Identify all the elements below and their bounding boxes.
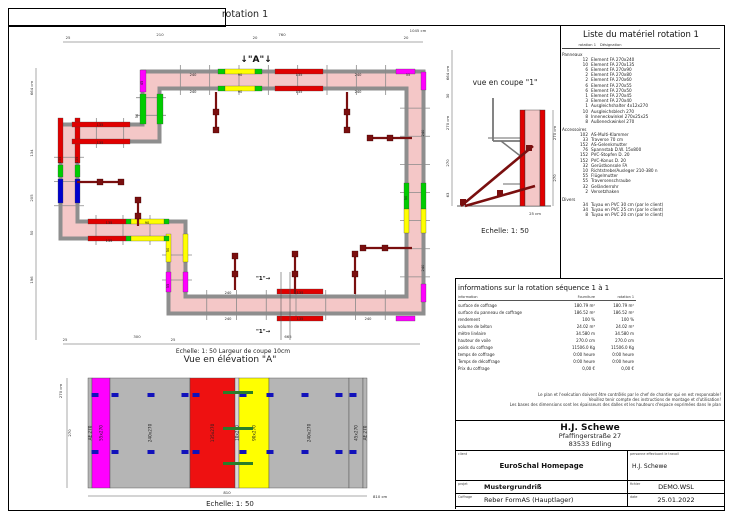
element-size-label: 135: [296, 73, 303, 77]
project-label: projet: [458, 482, 468, 486]
info-row-value: 24.02 m³: [556, 323, 595, 330]
info-row-value: 11506.0 Kg: [556, 344, 595, 351]
element-size-label: 55: [406, 73, 411, 77]
info-table-header: information Fourniture rotation 1: [458, 295, 636, 301]
drawing-sheet: rotation 1 2521020760201045 cm2530025665…: [0, 0, 730, 518]
element-size-label: 240: [225, 291, 233, 295]
elevation-text: 270: [67, 429, 72, 437]
brace-foot: [135, 213, 141, 219]
element-size-label: 240: [190, 73, 198, 77]
brace-foot: [292, 251, 298, 257]
info-row-value: 180.79 m²: [595, 302, 634, 309]
brace-foot: [118, 179, 124, 185]
clamp-mark: [350, 393, 357, 397]
info-row-value: 0,00 €: [556, 365, 595, 372]
section-text: 63: [445, 192, 450, 197]
clamp-mark: [267, 450, 274, 454]
company-city: 83533 Edling: [456, 441, 724, 449]
element-size-label: 55: [166, 284, 170, 289]
elevation-element-label: 45x270: [354, 425, 359, 441]
info-row-value: 11506.0 Kg: [595, 344, 634, 351]
element-size-label: 90: [238, 90, 243, 94]
section-text: 664 cm: [445, 66, 450, 81]
title-block-company: H.J. Schewe Pfaffingerstraße 27 83533 Ed…: [456, 421, 724, 451]
clamp-mark: [112, 450, 119, 454]
info-row-value: 0:00 heure: [556, 351, 595, 358]
formwork-element: [157, 94, 163, 124]
info-row-value: 34.580 m: [556, 330, 595, 337]
clamp-mark: [193, 393, 200, 397]
title-block: H.J. Schewe Pfaffingerstraße 27 83533 Ed…: [455, 420, 725, 507]
brace-foot: [232, 271, 238, 277]
info-row-value: 0:00 heure: [595, 351, 634, 358]
info-row: Temps de décoffrage0:00 heure0:00 heure: [458, 358, 636, 365]
elevation-element-label: AE 270: [363, 425, 368, 440]
formwork-element: [218, 69, 225, 74]
element-size-label: 45: [140, 81, 144, 86]
info-row-value: 180.79 m²: [556, 302, 595, 309]
info-row-value: 0,00 €: [595, 365, 634, 372]
section-brace-foot: [526, 145, 532, 151]
info-row-value: 186.52 m²: [556, 309, 595, 316]
info-col-information: information: [458, 295, 556, 299]
section-view-drawing: vue en coupe "1"25 cmEchelle: 1: 50664 c…: [443, 38, 560, 250]
elevation-text: Vue en élévation "A": [184, 354, 277, 365]
elevation-text: 810 cm: [373, 494, 388, 499]
clamp-mark: [302, 393, 309, 397]
clamp-mark: [182, 393, 189, 397]
elevation-view-drawing: AE 27055x270240x270135x27010x27090x27024…: [55, 344, 400, 508]
element-size-label: 50: [166, 247, 170, 252]
info-row-label: rendement: [458, 316, 556, 323]
dimension-label: 20: [253, 35, 258, 40]
clamp-mark: [92, 393, 99, 397]
dimension-label: 210: [156, 32, 164, 37]
info-row-value: 186.52 m²: [595, 309, 634, 316]
dimension-label: 20: [404, 35, 409, 40]
date-value: 25.01.2022: [628, 496, 724, 504]
element-size-label: 135: [97, 123, 104, 127]
info-row-label: mètre linéaire: [458, 330, 556, 337]
info-row: hauteur de voile270.0 cm270.0 cm: [458, 337, 636, 344]
file-cell: fichier DEMO.WSL: [628, 481, 724, 493]
dimension-label: 760: [278, 32, 286, 37]
info-row-value: 100 %: [595, 316, 634, 323]
info-row: surface du panneau de coffrage186.52 m²1…: [458, 309, 636, 316]
elevation-element-label: 135x270: [210, 423, 215, 442]
element-size-label: 90: [145, 221, 150, 225]
info-row: temps de coffrage0:00 heure0:00 heure: [458, 351, 636, 358]
dimension-label: 50: [29, 230, 34, 235]
info-row-label: volume de béton: [458, 323, 556, 330]
clamp-mark: [148, 450, 155, 454]
dimension-label: 196: [29, 276, 34, 284]
elevation-element-label: 240x270: [307, 423, 312, 442]
info-row-label: Temps de décoffrage: [458, 358, 556, 365]
formwork-value: Reber FormAS (Hauptlager): [484, 496, 573, 504]
section-text: 270: [445, 159, 450, 167]
formwork-element: [58, 179, 63, 203]
brace-foot: [135, 197, 141, 203]
section-marker-a: ↓"A"↓: [240, 55, 271, 65]
element-size-label: 135: [297, 291, 304, 295]
formwork-element: [421, 284, 426, 302]
clamp-mark: [302, 450, 309, 454]
info-row-value: 24.02 m³: [595, 323, 634, 330]
project-cell: projet Mustergrundriß: [456, 481, 628, 493]
section-text: Echelle: 1: 50: [481, 227, 529, 235]
brace-foot: [213, 109, 219, 115]
info-row-value: 100 %: [556, 316, 595, 323]
material-item-label: Versetzhaken: [591, 189, 720, 194]
dimension-label: 25: [66, 35, 71, 40]
clamp-mark: [182, 450, 189, 454]
section-text: vue en coupe "1": [473, 78, 538, 87]
material-item-qty: 8: [562, 212, 591, 217]
brace-foot: [382, 245, 388, 251]
info-row: Prix du coffrage0,00 €0,00 €: [458, 365, 636, 372]
clamp-mark: [92, 450, 99, 454]
dimension-label: 664 cm: [29, 81, 34, 96]
info-row-label: temps de coffrage: [458, 351, 556, 358]
formwork-element: [126, 219, 131, 224]
clamp-mark: [240, 450, 247, 454]
info-row: rendement100 %100 %: [458, 316, 636, 323]
dimension-label: 665: [284, 334, 292, 339]
material-item-row: 8Tuyau en PVC 20 cm (par le client): [562, 212, 720, 217]
element-size-label: 240: [421, 129, 425, 137]
brace-foot: [352, 251, 358, 257]
formwork-element: [131, 236, 164, 241]
element-size-label: 240: [355, 73, 363, 77]
info-row: surface de coffrage180.79 m²180.79 m²: [458, 302, 636, 309]
adjustment-bar: [223, 427, 253, 430]
formwork-element: [183, 234, 188, 262]
formwork-element: [396, 316, 415, 321]
dimension-label: 25: [63, 337, 68, 342]
brace-foot: [232, 253, 238, 259]
formwork-element: [421, 183, 426, 209]
info-row-label: hauteur de voile: [458, 337, 556, 344]
dimension-label: 1045 cm: [410, 28, 427, 33]
client-label: client: [458, 452, 467, 456]
brace-foot: [344, 127, 350, 133]
clamp-mark: [267, 393, 274, 397]
dimension-label: 25: [171, 337, 176, 342]
material-list-header: rotation 1 Désignation: [562, 43, 720, 49]
info-row-label: Prix du coffrage: [458, 365, 556, 372]
info-row-label: surface de coffrage: [458, 302, 556, 309]
element-size-label: 50: [404, 195, 408, 200]
info-row-value: 0:00 heure: [556, 358, 595, 365]
material-list: Liste du matériel rotation 1 rotation 1 …: [562, 30, 720, 217]
brace-foot: [213, 127, 219, 133]
disclaimer-notes: Le plan et l'exécution doivent être cont…: [455, 392, 721, 407]
element-size-label: 240: [355, 90, 363, 94]
clamp-mark: [148, 393, 155, 397]
element-size-label: 135: [97, 141, 104, 145]
section-brace-foot: [497, 190, 503, 196]
elevation-text: 270 cm: [58, 384, 63, 399]
brace-foot: [367, 135, 373, 141]
info-row-value: 270.0 cm: [595, 337, 634, 344]
element-size-label: 135: [296, 90, 303, 94]
info-row: poids du coffrage11506.0 Kg11506.0 Kg: [458, 344, 636, 351]
client-value: EuroSchal Homepage: [456, 462, 627, 470]
clamp-mark: [193, 450, 200, 454]
formwork-element: [421, 209, 426, 233]
worker-cell: personne effectuant le travail H.J. Sche…: [628, 451, 724, 480]
section-brace-foot: [460, 199, 466, 205]
info-col-rotation1: rotation 1: [595, 295, 634, 299]
elevation-element-label: 240x270: [148, 423, 153, 442]
element-size-label: 135: [75, 157, 79, 164]
info-row-value: 270.0 cm: [556, 337, 595, 344]
info-table-rows: surface de coffrage180.79 m²180.79 m²sur…: [458, 302, 636, 372]
section-text: 30: [445, 93, 450, 98]
brace-foot: [360, 245, 366, 251]
formwork-element: [421, 72, 426, 90]
elevation-text: Echelle: 1: 50 Largeur de coupe 10cm: [176, 348, 290, 355]
elevation-text: 810: [223, 490, 231, 495]
element-size-label: 240: [365, 317, 373, 321]
brace-foot: [387, 135, 393, 141]
wall-formwork-frame: [69, 80, 415, 305]
wall-core: [69, 80, 415, 305]
formwork-element: [140, 94, 146, 124]
file-value: DEMO.WSL: [628, 483, 724, 491]
worker-value: H.J. Schewe: [632, 463, 667, 470]
info-row-label: surface du panneau de coffrage: [458, 309, 556, 316]
info-row-value: 0:00 heure: [595, 358, 634, 365]
adjustment-bar: [223, 391, 253, 394]
formwork-element: [218, 86, 225, 91]
element-size-label: 240: [225, 317, 233, 321]
dimension-label: 205: [29, 194, 34, 202]
worker-label: personne effectuant le travail: [630, 452, 679, 456]
section-cut-label: "1"→: [256, 329, 271, 335]
floor-plan-drawing: 2521020760201045 cm2530025665664 cm13420…: [28, 28, 452, 350]
brace-foot: [344, 109, 350, 115]
formwork-element: [126, 236, 131, 241]
elevation-element-label: 55x270: [99, 425, 104, 441]
section-wall-layer: [525, 110, 540, 206]
formwork-element: [58, 118, 63, 163]
material-list-items: Panneaux12Element FA 270x24010Element FA…: [562, 52, 720, 218]
info-row-label: poids du coffrage: [458, 344, 556, 351]
formwork-element: [255, 86, 262, 91]
clamp-mark: [336, 393, 343, 397]
clamp-mark: [350, 450, 357, 454]
client-cell: client EuroSchal Homepage: [456, 451, 628, 480]
info-row-value: 34.580 m: [595, 330, 634, 337]
element-size-label: 135: [297, 317, 304, 321]
info-col-fourniture: Fourniture: [556, 295, 595, 299]
formwork-element: [164, 219, 169, 224]
element-size-label: 135: [106, 221, 113, 225]
section-wall-layer: [520, 110, 525, 206]
element-size-label: 135: [106, 239, 113, 243]
material-item-row: 2Versetzhaken: [562, 189, 720, 194]
dimension-label: 134: [29, 149, 34, 157]
brace-foot: [292, 271, 298, 277]
material-list-col-designation: Désignation: [600, 43, 622, 47]
element-size-label: 240: [421, 264, 425, 272]
brace-foot: [352, 271, 358, 277]
disclaimer-line: Les bases des dimensions sont les épaiss…: [455, 402, 721, 407]
element-size-label: 240: [190, 90, 198, 94]
rotation-info-table: informations sur la rotation séquence 1 …: [458, 284, 636, 372]
formwork-element: [404, 209, 409, 233]
formwork-element: [75, 165, 80, 177]
element-size-label: 50: [135, 113, 139, 118]
material-item-qty: 2: [562, 189, 591, 194]
info-row: volume de béton24.02 m³24.02 m³: [458, 323, 636, 330]
elevation-element-label: AE 270: [88, 425, 93, 440]
clamp-mark: [112, 393, 119, 397]
formwork-cell: Coffrage Reber FormAS (Hauptlager): [456, 494, 628, 506]
section-cut-label: "1"→: [256, 276, 271, 282]
formwork-element: [183, 272, 188, 292]
material-list-title: Liste du matériel rotation 1: [562, 30, 720, 40]
project-value: Mustergrundriß: [484, 483, 542, 491]
section-text: 270 cm: [552, 126, 557, 141]
section-text: 25 cm: [529, 211, 541, 216]
material-list-col-rotation: rotation 1: [562, 43, 600, 47]
brace-foot: [97, 179, 103, 185]
info-row: mètre linéaire34.580 m34.580 m: [458, 330, 636, 337]
section-wall-layer: [540, 110, 545, 206]
element-size-label: 135: [58, 157, 62, 164]
section-text: 270 cm: [445, 116, 450, 131]
material-item-row: 8Außeneckwinkel 270: [562, 119, 720, 124]
clamp-mark: [336, 450, 343, 454]
divider-horizontal: [455, 278, 723, 279]
formwork-element: [58, 165, 63, 177]
divider-vertical: [560, 25, 561, 278]
adjustment-bar: [223, 462, 253, 465]
info-table-title: informations sur la rotation séquence 1 …: [458, 284, 636, 292]
plan-title: rotation 1: [180, 9, 310, 20]
section-text: 270: [552, 174, 557, 182]
material-item-label: Tuyau en PVC 20 cm (par le client): [591, 212, 720, 217]
dimension-label: 300: [133, 334, 141, 339]
formwork-element: [255, 69, 262, 74]
formwork-label: Coffrage: [458, 495, 472, 499]
date-cell: date 25.01.2022: [628, 494, 724, 506]
formwork-element: [164, 236, 169, 241]
element-size-label: 90: [238, 73, 243, 77]
material-item-label: Außeneckwinkel 270: [591, 119, 720, 124]
material-item-qty: 8: [562, 119, 591, 124]
elevation-text: Echelle: 1: 50: [206, 500, 254, 508]
